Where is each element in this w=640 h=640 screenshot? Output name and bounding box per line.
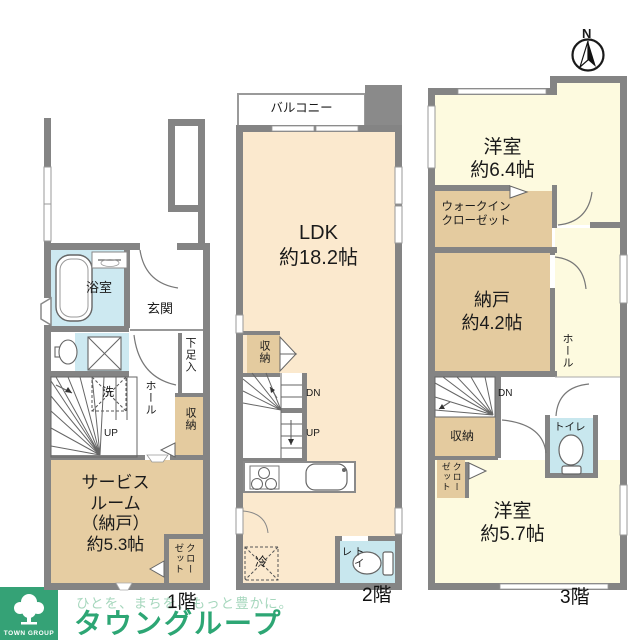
ldk-label: LDK 約18.2帖	[266, 221, 371, 271]
western-room-top-notch	[553, 83, 620, 95]
up-label-f1: UP	[104, 428, 118, 440]
compass-icon	[573, 40, 604, 71]
entrance-label: 玄関	[147, 301, 173, 316]
roof-block	[365, 85, 402, 132]
hall-door-arc	[134, 335, 176, 385]
window	[458, 89, 546, 94]
door-gap	[342, 536, 368, 541]
storage-room-label: 納戸 約4.2帖	[452, 289, 532, 334]
storage-label-f3: 収納	[450, 429, 474, 443]
closet-label-f3: クロー ゼット	[440, 462, 462, 498]
closet-label-f1: クロー ゼット	[172, 543, 195, 581]
window	[316, 126, 358, 131]
bay-window	[41, 298, 51, 325]
shoe-box-label: 下足入	[183, 337, 196, 391]
toilet-icon-f1	[55, 340, 77, 364]
window	[428, 106, 435, 168]
western-room-top-label: 洋室 約6.4帖	[455, 136, 550, 182]
storage-label-f2: 収納	[257, 340, 270, 370]
window	[620, 255, 627, 303]
compass-north-label: N	[582, 26, 591, 41]
bath-counter-icon	[92, 252, 127, 268]
floorplan-canvas: 浴室 玄関 下足入 ホール 洗 収納 UP サービス ルーム （納戸） 約5.3…	[0, 0, 640, 640]
bedroom-door-arc-f3	[502, 420, 546, 453]
laundry-label: 洗	[102, 385, 114, 399]
toilet-icon-f3	[559, 435, 583, 474]
window	[395, 508, 402, 534]
wic-label: ウォークイン クローゼット	[434, 200, 518, 228]
fridge-label: 冷	[255, 555, 268, 570]
window	[272, 126, 314, 131]
dn-label-f2: DN	[306, 388, 320, 400]
balcony-label: バルコニー	[238, 101, 365, 116]
floor2-plan	[236, 85, 402, 590]
window	[395, 167, 402, 204]
window	[620, 485, 627, 535]
tree-icon	[14, 594, 44, 625]
toilet-door-arc-f3	[556, 384, 589, 416]
hall-label-f3: ホール	[560, 333, 573, 375]
storage-label-f1: 収納	[183, 407, 196, 447]
floor2-tag: 2階	[362, 585, 392, 607]
entrance-door-arc	[140, 250, 178, 288]
floor1-tag: 1階	[167, 592, 197, 614]
bath-label: 浴室	[86, 280, 112, 295]
window	[500, 584, 608, 589]
up-label-f2: UP	[306, 428, 320, 440]
toilet-label-f3: トイレ	[554, 421, 586, 433]
door-gap	[550, 255, 555, 288]
kitchen-counter-icon	[244, 462, 355, 492]
dn-label-f3: DN	[498, 388, 512, 400]
floor3-tag: 3階	[560, 587, 590, 609]
western-room-bottom-label: 洋室 約5.7帖	[465, 500, 560, 546]
washbasin-icon	[88, 337, 121, 370]
window	[236, 315, 243, 333]
window	[236, 508, 243, 534]
service-room-label: サービス ルーム （納戸） 約5.3帖	[53, 473, 178, 556]
window	[395, 206, 402, 243]
toilet-label-f2: トイレ	[340, 546, 365, 580]
stairs-f1	[51, 377, 137, 457]
stairs-f3	[435, 377, 495, 417]
hall-label-f1: ホール	[143, 380, 156, 422]
